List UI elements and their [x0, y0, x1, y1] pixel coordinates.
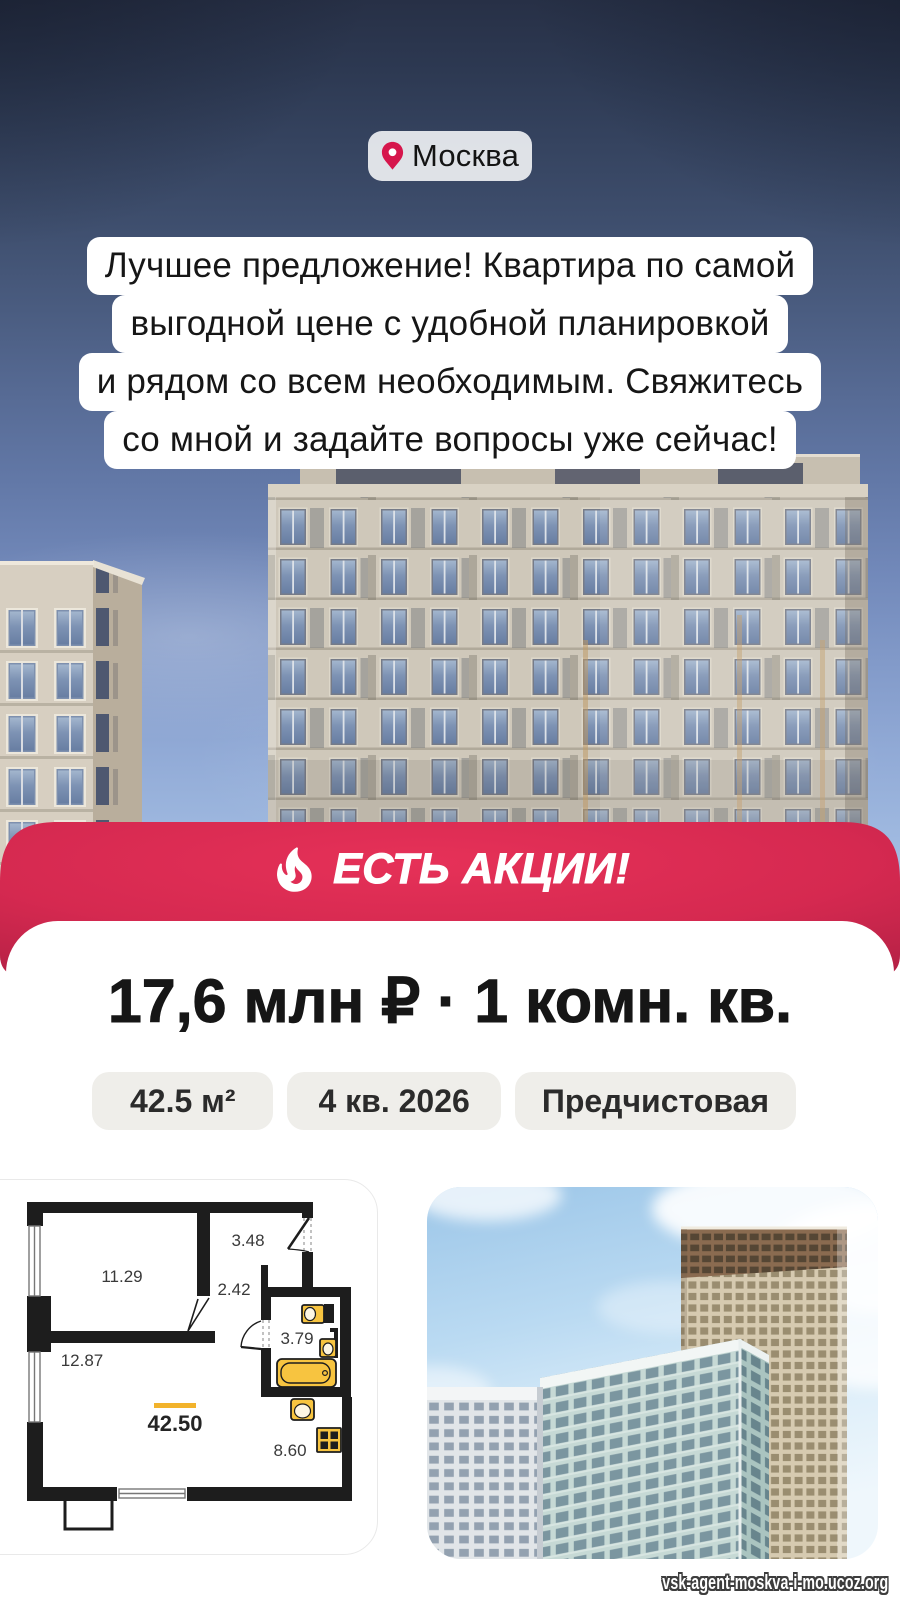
svg-text:2.42: 2.42 [217, 1280, 250, 1299]
svg-text:3.48: 3.48 [231, 1231, 264, 1250]
svg-text:42.50: 42.50 [147, 1411, 202, 1436]
svg-text:3.79: 3.79 [280, 1329, 313, 1348]
svg-text:8.60: 8.60 [273, 1441, 306, 1460]
svg-text:12.87: 12.87 [61, 1351, 104, 1370]
svg-text:11.29: 11.29 [101, 1267, 142, 1286]
